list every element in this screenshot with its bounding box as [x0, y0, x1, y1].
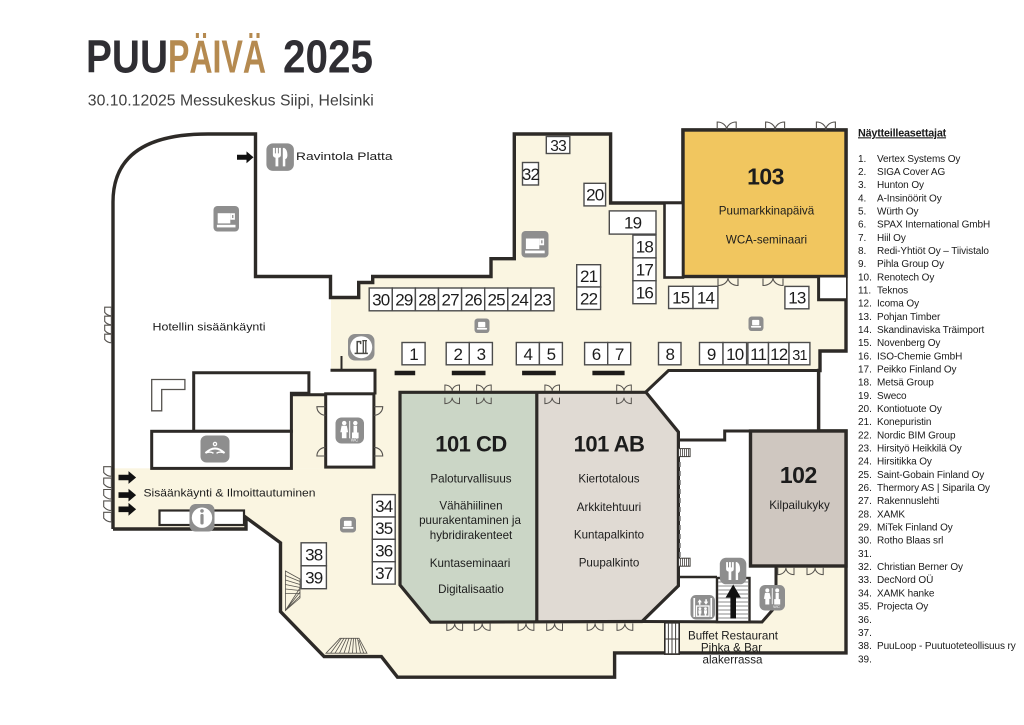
svg-text:27: 27: [441, 291, 459, 310]
svg-text:19: 19: [624, 214, 642, 233]
svg-text:4.: 4.: [858, 193, 866, 204]
svg-text:XAMK hanke: XAMK hanke: [877, 588, 935, 599]
svg-text:PUU: PUU: [86, 31, 168, 83]
svg-text:11: 11: [750, 345, 766, 364]
svg-text:15.: 15.: [858, 338, 872, 349]
svg-text:Redi-Yhtiöt Oy – Tiivistalo: Redi-Yhtiöt Oy – Tiivistalo: [877, 246, 989, 257]
svg-text:31: 31: [792, 348, 807, 364]
svg-text:WC: WC: [351, 438, 359, 443]
svg-text:103: 103: [747, 164, 784, 190]
svg-text:3: 3: [477, 345, 486, 364]
svg-text:18: 18: [636, 237, 654, 256]
svg-text:28.: 28.: [858, 509, 872, 520]
svg-text:SPAX International GmbH: SPAX International GmbH: [877, 220, 990, 231]
svg-text:Vertex Systems Oy: Vertex Systems Oy: [877, 154, 960, 165]
svg-text:WCA-seminaari: WCA-seminaari: [726, 234, 807, 247]
svg-text:31.: 31.: [858, 549, 872, 560]
svg-text:Paloturvallisuus: Paloturvallisuus: [430, 472, 511, 485]
svg-text:Sisäänkäynti & Ilmoittautumine: Sisäänkäynti & Ilmoittautuminen: [144, 488, 316, 500]
svg-text:2.: 2.: [858, 167, 866, 178]
svg-text:DecNord OÜ: DecNord OÜ: [877, 574, 933, 586]
svg-text:23: 23: [534, 291, 552, 310]
svg-text:Kuntaseminaari: Kuntaseminaari: [430, 557, 511, 570]
svg-text:38: 38: [305, 545, 323, 564]
svg-text:Rakennuslehti: Rakennuslehti: [877, 496, 939, 507]
svg-text:37.: 37.: [858, 628, 872, 639]
svg-text:2: 2: [453, 345, 462, 364]
svg-text:Würth Oy: Würth Oy: [877, 207, 919, 218]
svg-text:6: 6: [592, 345, 601, 364]
svg-text:6.: 6.: [858, 220, 866, 231]
svg-text:16.: 16.: [858, 351, 872, 362]
svg-text:XAMK: XAMK: [877, 509, 905, 520]
svg-text:SIGA Cover AG: SIGA Cover AG: [877, 167, 945, 178]
svg-text:Konepuristin: Konepuristin: [877, 417, 931, 428]
svg-text:Sweco: Sweco: [877, 391, 907, 402]
svg-text:PuuLoop - Puutuoteteollisuus r: PuuLoop - Puutuoteteollisuus ry: [877, 641, 1016, 652]
svg-text:36.: 36.: [858, 615, 872, 626]
svg-text:25.: 25.: [858, 470, 872, 481]
svg-text:2025: 2025: [283, 31, 373, 83]
svg-text:Digitalisaatio: Digitalisaatio: [438, 583, 504, 596]
svg-text:alakerrassa: alakerrassa: [703, 654, 763, 667]
svg-text:35: 35: [375, 519, 393, 538]
svg-text:18.: 18.: [858, 378, 872, 389]
svg-text:12.: 12.: [858, 299, 872, 310]
svg-text:22: 22: [580, 289, 598, 308]
svg-text:24.: 24.: [858, 457, 872, 468]
svg-text:4: 4: [523, 345, 532, 364]
svg-text:17: 17: [636, 261, 654, 280]
svg-text:Peikko Finland Oy: Peikko Finland Oy: [877, 365, 957, 376]
svg-text:34.: 34.: [858, 588, 872, 599]
svg-text:5: 5: [547, 345, 556, 364]
svg-text:27.: 27.: [858, 496, 872, 507]
svg-text:14.: 14.: [858, 325, 872, 336]
svg-text:Hiil Oy: Hiil Oy: [877, 233, 906, 244]
svg-text:101 CD: 101 CD: [435, 432, 507, 457]
svg-text:8.: 8.: [858, 246, 866, 257]
svg-text:Hirsityö Heikkilä Oy: Hirsityö Heikkilä Oy: [877, 444, 962, 455]
svg-text:8: 8: [665, 345, 674, 364]
svg-text:5.: 5.: [858, 207, 866, 218]
svg-text:1: 1: [409, 345, 418, 364]
svg-text:26: 26: [465, 291, 483, 310]
svg-text:hybridirakenteet: hybridirakenteet: [430, 529, 513, 542]
svg-text:puurakentaminen ja: puurakentaminen ja: [419, 514, 521, 527]
svg-text:Teknos: Teknos: [877, 286, 908, 297]
svg-text:ISO-Chemie GmbH: ISO-Chemie GmbH: [877, 351, 962, 362]
svg-text:WC: WC: [773, 604, 780, 609]
svg-text:Skandinaviska Träimport: Skandinaviska Träimport: [877, 325, 985, 336]
svg-text:11.: 11.: [858, 286, 871, 297]
svg-text:20.: 20.: [858, 404, 872, 415]
svg-text:25: 25: [488, 291, 506, 310]
svg-text:3.: 3.: [858, 180, 866, 191]
svg-text:7.: 7.: [858, 233, 866, 244]
svg-text:PÄIVÄ: PÄIVÄ: [168, 31, 266, 83]
svg-text:29.: 29.: [858, 523, 872, 534]
svg-text:Saint-Gobain Finland Oy: Saint-Gobain Finland Oy: [877, 470, 984, 481]
svg-text:Ravintola Platta: Ravintola Platta: [296, 151, 393, 163]
svg-text:30.10.12025 Messukeskus Siipi,: 30.10.12025 Messukeskus Siipi, Helsinki: [88, 93, 374, 110]
svg-text:33.: 33.: [858, 575, 872, 586]
svg-text:39: 39: [305, 568, 323, 587]
svg-text:19.: 19.: [858, 391, 872, 402]
svg-text:9: 9: [707, 345, 716, 364]
svg-text:34: 34: [375, 497, 393, 516]
svg-text:Thermory AS | Siparila Oy: Thermory AS | Siparila Oy: [877, 483, 990, 494]
svg-text:36: 36: [375, 542, 393, 561]
svg-text:33: 33: [550, 138, 566, 155]
svg-text:17.: 17.: [858, 365, 872, 376]
svg-text:Pihla Group Oy: Pihla Group Oy: [877, 259, 944, 270]
svg-text:Kuntapalkinto: Kuntapalkinto: [574, 529, 644, 542]
svg-text:20: 20: [586, 186, 604, 205]
svg-text:Arkkitehtuuri: Arkkitehtuuri: [577, 501, 641, 514]
svg-text:Metsä Group: Metsä Group: [877, 378, 934, 389]
svg-text:Kiertotalous: Kiertotalous: [578, 473, 639, 486]
svg-text:32: 32: [522, 165, 540, 184]
svg-text:MiTek Finland Oy: MiTek Finland Oy: [877, 523, 953, 534]
svg-text:Icoma Oy: Icoma Oy: [877, 299, 919, 310]
svg-text:21.: 21.: [858, 417, 872, 428]
svg-text:Rotho Blaas srl: Rotho Blaas srl: [877, 536, 943, 547]
svg-text:13.: 13.: [858, 312, 872, 323]
svg-text:21: 21: [580, 267, 598, 286]
svg-text:Christian Berner Oy: Christian Berner Oy: [877, 562, 963, 573]
svg-text:Kontiotuote Oy: Kontiotuote Oy: [877, 404, 942, 415]
svg-text:39.: 39.: [858, 654, 872, 665]
svg-text:Novenberg Oy: Novenberg Oy: [877, 338, 940, 349]
svg-text:Hotellin sisäänkäynti: Hotellin sisäänkäynti: [153, 322, 266, 334]
svg-text:Pohjan Timber: Pohjan Timber: [877, 312, 941, 323]
svg-text:24: 24: [511, 291, 529, 310]
svg-text:Projecta Oy: Projecta Oy: [877, 602, 928, 613]
svg-text:101 AB: 101 AB: [574, 432, 645, 457]
svg-text:Näytteilleasettajat: Näytteilleasettajat: [858, 127, 947, 139]
svg-text:22.: 22.: [858, 430, 872, 441]
svg-text:38.: 38.: [858, 641, 872, 652]
svg-text:Renotech Oy: Renotech Oy: [877, 272, 934, 283]
svg-text:Vähähiilinen: Vähähiilinen: [439, 500, 502, 513]
svg-text:7: 7: [615, 345, 624, 364]
svg-text:Nordic BIM Group: Nordic BIM Group: [877, 430, 956, 441]
svg-text:26.: 26.: [858, 483, 872, 494]
svg-text:Hirsitikka Oy: Hirsitikka Oy: [877, 457, 932, 468]
svg-text:13: 13: [788, 289, 806, 308]
svg-text:30: 30: [372, 291, 390, 310]
svg-text:1.: 1.: [858, 154, 866, 165]
svg-text:35.: 35.: [858, 602, 872, 613]
svg-text:Puupalkinto: Puupalkinto: [579, 557, 640, 570]
svg-text:32.: 32.: [858, 562, 872, 573]
svg-text:Hunton Oy: Hunton Oy: [877, 180, 924, 191]
svg-text:29: 29: [395, 291, 413, 310]
svg-text:23.: 23.: [858, 444, 872, 455]
svg-text:102: 102: [780, 462, 817, 488]
svg-text:Puumarkkinapäivä: Puumarkkinapäivä: [719, 205, 815, 218]
svg-text:A-Insinöörit Oy: A-Insinöörit Oy: [877, 193, 942, 204]
svg-text:15: 15: [672, 289, 690, 308]
svg-text:10.: 10.: [858, 272, 872, 283]
svg-text:14: 14: [697, 289, 715, 308]
svg-text:9.: 9.: [858, 259, 866, 270]
svg-text:16: 16: [636, 284, 654, 303]
svg-text:Kilpailukyky: Kilpailukyky: [769, 499, 830, 512]
svg-text:12: 12: [770, 345, 788, 364]
svg-text:10: 10: [726, 345, 744, 364]
svg-text:30.: 30.: [858, 536, 872, 547]
svg-text:37: 37: [375, 564, 393, 583]
svg-text:28: 28: [418, 291, 436, 310]
